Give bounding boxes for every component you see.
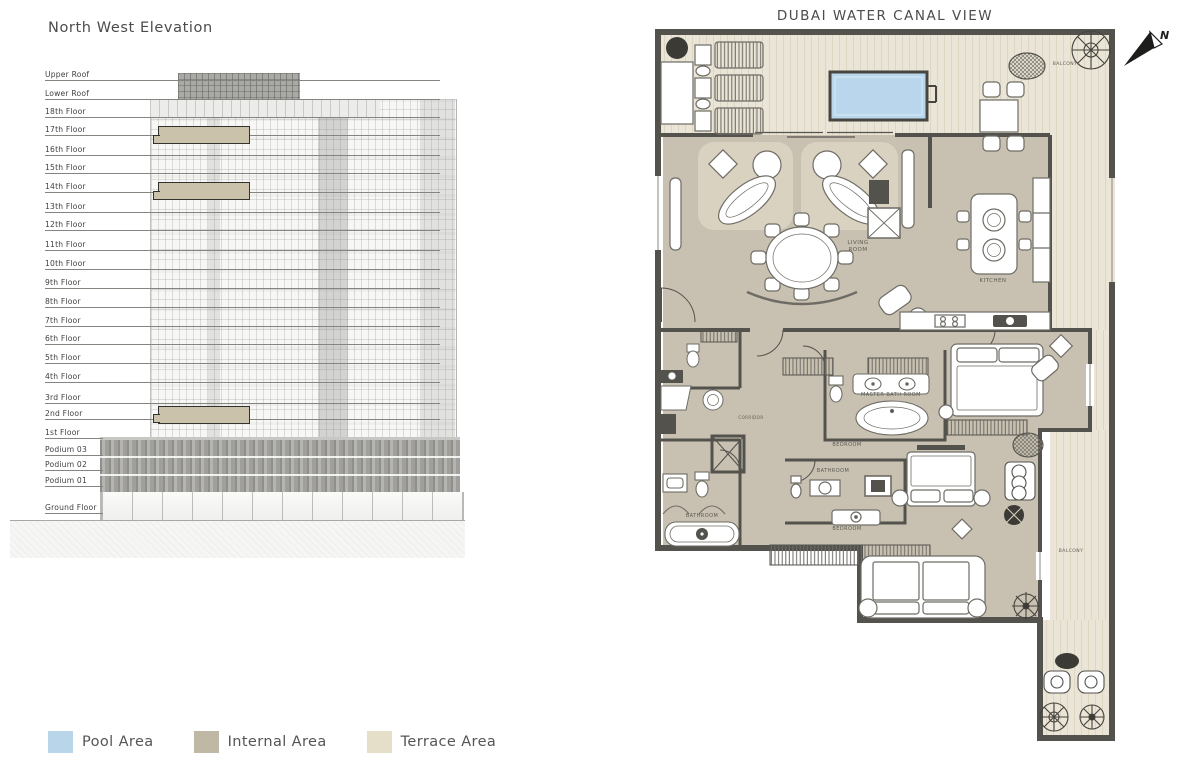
floor-label-row: 15th Floor	[45, 173, 440, 174]
floor-label: Ground Floor	[45, 503, 97, 512]
spike-plant-icon2	[1080, 705, 1104, 729]
floor-label: 1st Floor	[45, 428, 80, 437]
floor-label: 14th Floor	[45, 182, 86, 191]
floor-label-row: Ground Floor	[45, 513, 103, 514]
ground-line	[10, 520, 465, 521]
architecture-sheet: { "elevation": { "title": "North West El…	[0, 0, 1200, 762]
highlight-unit-14th	[158, 182, 250, 200]
tv-icon	[917, 445, 965, 450]
floor-label-row: 16th Floor	[45, 155, 440, 156]
floor-label: 6th Floor	[45, 334, 81, 343]
bathroom-mid-label: BATHROOM	[803, 468, 863, 475]
balcony-top-label: BALCONY	[1041, 62, 1089, 68]
sliding-door-markers	[755, 133, 893, 138]
floor-label: Podium 01	[45, 476, 87, 485]
floor-label-row: 5th Floor	[45, 363, 440, 364]
floor-label: 11th Floor	[45, 240, 86, 249]
floor-label-row: Podium 01	[45, 486, 103, 487]
floor-label-row: 1st Floor	[45, 438, 103, 439]
floor-label-row: 8th Floor	[45, 307, 440, 308]
plan-drawing	[655, 28, 1115, 742]
highlight-unit-17th	[158, 126, 250, 144]
balcony-plants	[1004, 433, 1104, 731]
tower-facade	[150, 99, 457, 437]
highlight-unit-2nd	[158, 406, 250, 424]
floor-label-row: 4th Floor	[45, 382, 440, 383]
bathtub-icon	[856, 401, 928, 435]
north-arrow: N	[1122, 26, 1174, 76]
highlight-unit-2nd-step	[153, 414, 160, 423]
floor-label-row: Lower Roof	[45, 99, 440, 100]
floor-label: 15th Floor	[45, 163, 86, 172]
floor-label-row: 11th Floor	[45, 250, 440, 251]
floor-label-row: Upper Roof	[45, 80, 440, 81]
tower-core-strip	[318, 99, 348, 437]
bathroom-left-fixtures	[663, 472, 739, 546]
bedroom2-furniture	[791, 445, 990, 525]
floor-label-row: Podium 02	[45, 470, 103, 471]
floor-label-row: 12th Floor	[45, 230, 440, 231]
pool-area-label: Pool Area	[82, 734, 154, 750]
living-room-label: LIVING ROOM	[838, 240, 878, 255]
floor-label: 5th Floor	[45, 353, 81, 362]
internal-area-swatch	[194, 731, 219, 753]
floor-label: 13th Floor	[45, 202, 86, 211]
floor-label-row: 6th Floor	[45, 344, 440, 345]
ground-floor-glazing	[100, 492, 464, 520]
spiky-plant-icon	[1012, 592, 1040, 620]
floor-label: 7th Floor	[45, 316, 81, 325]
floor-plan: LIVING ROOM KITCHEN MASTER BATH ROOM BED…	[655, 28, 1115, 742]
bedroom-bottom-label: BEDROOM	[820, 526, 874, 533]
master-bedroom-furniture	[939, 335, 1072, 419]
floor-label-row: 18th Floor	[45, 117, 440, 118]
pool-area-swatch	[48, 731, 73, 753]
floor-label: Upper Roof	[45, 70, 89, 79]
tower-right-wing	[420, 99, 455, 437]
floor-label: 9th Floor	[45, 278, 81, 287]
elevation-title: North West Elevation	[48, 20, 213, 36]
bathroom-left-label: BATHROOM	[673, 513, 731, 520]
round-plant-icon	[1040, 703, 1068, 731]
hob-icon	[935, 315, 965, 327]
floor-label: 12th Floor	[45, 220, 86, 229]
roof-mechanical-block	[178, 73, 300, 99]
kitchen-label: KITCHEN	[963, 278, 1023, 285]
floor-label: 18th Floor	[45, 107, 86, 116]
tv-unit	[902, 150, 914, 228]
balcony-right-label: BALCONY	[1047, 549, 1095, 555]
floor-label: 3rd Floor	[45, 393, 81, 402]
floor-label-row: 10th Floor	[45, 269, 440, 270]
bottom-bedroom-furniture	[859, 519, 986, 618]
tall-units	[1033, 178, 1050, 282]
planter-icon	[1009, 53, 1045, 79]
kitchen-counter	[900, 312, 1050, 330]
corridor-label: CORRIDOR	[727, 415, 775, 420]
compass-n-label: N	[1160, 29, 1169, 42]
outdoor-dining-set	[980, 82, 1024, 151]
floor-label: 8th Floor	[45, 297, 81, 306]
pool	[830, 72, 936, 120]
dining-table	[751, 213, 853, 300]
highlight-unit-14th-step	[153, 191, 160, 200]
compass-needle-icon	[1124, 32, 1154, 66]
legend-item-pool: Pool Area	[48, 731, 154, 753]
console	[670, 178, 681, 250]
plan-title: DUBAI WATER CANAL VIEW	[655, 8, 1115, 24]
terrace-area-swatch	[367, 731, 392, 753]
floor-label: 2nd Floor	[45, 409, 83, 418]
floor-label-row: 9th Floor	[45, 288, 440, 289]
highlight-unit-17th-step	[153, 135, 160, 144]
bedroom-mid-label: BEDROOM	[820, 442, 874, 449]
ground-texture	[10, 521, 465, 558]
floor-label: Podium 03	[45, 445, 87, 454]
floor-label: Podium 02	[45, 460, 87, 469]
floor-label: Lower Roof	[45, 89, 89, 98]
legend-item-internal: Internal Area	[194, 731, 327, 753]
plant-icon	[1055, 653, 1079, 669]
floor-label: 17th Floor	[45, 125, 86, 134]
floor-label-row: Podium 03	[45, 455, 103, 456]
floor-label-row: 13th Floor	[45, 212, 440, 213]
podium-facade	[100, 437, 460, 495]
master-bathroom-label: MASTER BATH ROOM	[845, 392, 937, 399]
floor-label: 4th Floor	[45, 372, 81, 381]
floor-label-row: 3rd Floor	[45, 403, 440, 404]
floor-label: 10th Floor	[45, 259, 86, 268]
legend-item-terrace: Terrace Area	[367, 731, 497, 753]
roof-band	[150, 99, 380, 118]
plant-icon	[666, 37, 688, 59]
legend: Pool Area Internal Area Terrace Area	[48, 731, 536, 753]
sunbeds	[695, 42, 763, 134]
terrace-area-label: Terrace Area	[401, 734, 497, 750]
kitchen-island	[971, 194, 1017, 274]
internal-area-label: Internal Area	[228, 734, 327, 750]
master-bathroom-fixtures	[829, 374, 929, 435]
floor-label-row: 7th Floor	[45, 326, 440, 327]
floor-label: 16th Floor	[45, 145, 86, 154]
tower-core-strip2	[208, 99, 220, 437]
